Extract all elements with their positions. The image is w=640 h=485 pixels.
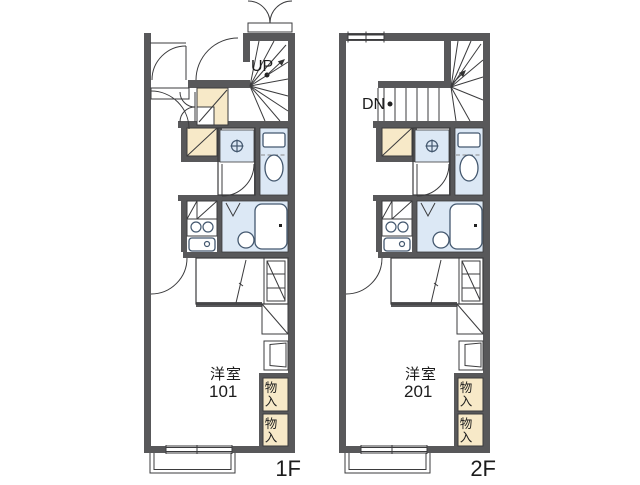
wall: [217, 201, 222, 252]
room-number: 201: [404, 382, 432, 401]
wall-right: [288, 33, 295, 453]
toilet-tank: [263, 133, 285, 147]
toilet-bowl: [460, 155, 478, 181]
bed: [196, 258, 288, 304]
bath-stool: [433, 232, 449, 248]
bathtub: [255, 204, 287, 249]
bed-fold: [462, 261, 480, 300]
toilet-tank: [458, 133, 480, 147]
entrance-door-leaf: [248, 23, 292, 32]
stair-tread: [451, 77, 483, 87]
bath-faucet: [279, 224, 282, 227]
room-door-arc: [346, 258, 382, 294]
wall: [376, 156, 414, 162]
balcony: [154, 453, 231, 470]
wall: [181, 201, 187, 252]
room-number: 101: [209, 382, 237, 401]
bed-fold: [267, 261, 285, 300]
stair-wall: [444, 41, 451, 88]
stair-start-dot: [388, 102, 393, 107]
shoe-closet-inner: [197, 107, 214, 125]
unit-101-plan: 物入物入洋室1011FUP: [144, 1, 301, 481]
storage-label: 物入: [263, 381, 277, 408]
balcony: [349, 453, 426, 470]
stair-tread: [451, 87, 483, 100]
wall: [376, 125, 382, 156]
stair-top-wall: [243, 33, 295, 41]
storage-label: 物入: [458, 381, 472, 408]
bath-stool: [238, 232, 254, 248]
unit-201-plan: 物入物入洋室2012FDN: [339, 32, 496, 482]
floorplan-svg: 物入物入洋室1011FUP物入物入洋室2012FDN: [0, 0, 640, 485]
wall: [373, 121, 490, 128]
wall-left: [339, 33, 346, 453]
floor-label: 2F: [470, 456, 496, 481]
bath-faucet: [474, 224, 477, 227]
bed-fold: [431, 260, 441, 303]
wall: [259, 373, 295, 378]
closet-diagonal: [457, 304, 483, 334]
wall-left: [144, 33, 151, 453]
closet-diagonal: [262, 304, 288, 334]
room-label: 洋室: [405, 366, 437, 383]
toilet-bowl: [265, 155, 283, 181]
wall: [454, 373, 490, 378]
storage-label: 物入: [458, 417, 472, 444]
wall: [183, 252, 295, 258]
room-label: 洋室: [210, 366, 242, 383]
entrance-door-arc: [248, 1, 270, 23]
wall: [181, 125, 187, 156]
stair-partition-wall: [378, 81, 451, 88]
shelf-inner: [270, 343, 286, 367]
wall-right: [483, 33, 490, 453]
entry-step: [151, 88, 189, 99]
wall: [181, 156, 219, 162]
bed-fold: [236, 260, 246, 303]
stair-tread: [250, 86, 280, 121]
shelf-inner: [465, 343, 481, 367]
floorplan-canvas: 物入物入洋室1011FUP物入物入洋室2012FDN: [0, 0, 640, 485]
wall: [412, 201, 417, 252]
wall: [178, 121, 295, 128]
bed: [391, 258, 483, 304]
stair-tread: [250, 86, 288, 96]
entrance-door-arc: [270, 1, 292, 23]
wall: [178, 195, 295, 201]
wall: [378, 252, 490, 258]
stair-direction-label: DN: [362, 96, 385, 113]
entry-wall: [188, 80, 250, 88]
door-arc: [196, 38, 238, 80]
wall: [373, 195, 490, 201]
kitchen-sink: [189, 238, 215, 251]
door-arc: [222, 164, 254, 196]
kitchen-sink: [384, 238, 410, 251]
storage-label: 物入: [263, 417, 277, 444]
bathtub: [450, 204, 482, 249]
door-arc: [152, 46, 186, 80]
wall: [376, 201, 382, 252]
door-arc: [417, 164, 449, 196]
room-door-arc: [151, 258, 187, 294]
stair-wall: [243, 33, 250, 62]
floor-label: 1F: [275, 456, 301, 481]
